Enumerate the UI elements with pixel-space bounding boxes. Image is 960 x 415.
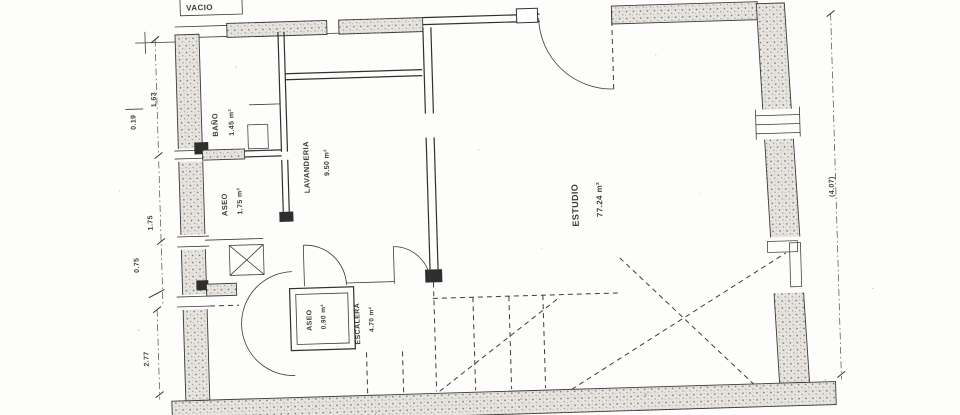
bano-inner-line xyxy=(249,104,280,105)
central-wall-cap xyxy=(425,269,442,282)
room-labels: ESTUDIO 77.24 m² LAVANDERIA 9.50 m² BAÑO… xyxy=(210,98,608,349)
label-escalera-area: 4.70 m² xyxy=(368,306,376,332)
top-wall-segment-3 xyxy=(611,2,757,24)
dim-left-mid: 1.75 xyxy=(147,215,154,230)
dim-left-bottom: 2.77 xyxy=(143,351,150,366)
bottom-wall xyxy=(172,382,836,415)
label-aseo-area: 1.75 m² xyxy=(237,187,245,214)
entry-door xyxy=(539,12,614,91)
stair-hall-wall xyxy=(206,283,236,296)
staircase xyxy=(208,231,789,400)
lavanderia-top-wall xyxy=(285,70,422,80)
central-wall xyxy=(423,27,438,269)
label-escalera: ESCALERA xyxy=(354,303,362,345)
stair-dash-top xyxy=(433,293,619,299)
label-aseo2: ASEO xyxy=(306,309,314,331)
top-annotation: VACIO xyxy=(180,0,243,16)
label-aseo: ASEO xyxy=(220,193,230,216)
aseo-right-wall xyxy=(282,160,290,212)
top-wall-segment-2 xyxy=(339,18,423,34)
dimensions: 1.63 0.19 1.75 0.75 2.77 (4.07) xyxy=(123,10,846,400)
bano-aseo-wall xyxy=(202,149,244,160)
stair-dash-left xyxy=(210,305,239,306)
label-aseo2-area: 0.90 m² xyxy=(320,304,328,330)
dim-left-offset: 0.19 xyxy=(130,115,137,130)
stair-door-swing-2 xyxy=(393,246,430,284)
bano-fixture xyxy=(248,124,269,149)
stair-door-swing-large xyxy=(240,272,295,377)
dim-left-top: 1.63 xyxy=(151,92,158,107)
label-estudio: ESTUDIO xyxy=(570,184,581,227)
label-lavanderia-area: 9.50 m² xyxy=(323,149,331,176)
label-lavanderia: LAVANDERIA xyxy=(301,141,312,193)
plan-rotated-group: ESTUDIO 77.24 m² LAVANDERIA 9.50 m² BAÑO… xyxy=(113,0,877,415)
stair-door-swing-1 xyxy=(303,244,346,286)
dim-right-side: (4.07) xyxy=(828,176,836,197)
dimension-ticks-left xyxy=(141,36,170,397)
aseo-bottom-line xyxy=(205,238,263,240)
bano-right-wall xyxy=(278,32,288,152)
duct-shaft xyxy=(229,244,264,275)
annotation-top-partial: VACIO xyxy=(186,3,213,13)
top-wall-segment-1 xyxy=(227,20,327,37)
bano-aseo-wall-thin xyxy=(244,150,281,157)
void-cross-diagonals xyxy=(568,253,790,389)
label-bano: BAÑO xyxy=(210,113,220,137)
door-jamb-left xyxy=(516,8,537,23)
floorplan-canvas: ESTUDIO 77.24 m² LAVANDERIA 9.50 m² BAÑO… xyxy=(0,0,960,415)
stair-hall-lintel xyxy=(346,282,394,283)
exterior-walls xyxy=(161,0,837,415)
dim-left-low: 0.75 xyxy=(134,257,141,272)
aseo-door-jamb-cap xyxy=(279,212,293,222)
scanned-floor-plan: ESTUDIO 77.24 m² LAVANDERIA 9.50 m² BAÑO… xyxy=(0,0,960,415)
label-estudio-area: 77.24 m² xyxy=(595,182,605,217)
left-wall xyxy=(175,34,210,401)
stair-flight-diagonal xyxy=(437,298,562,392)
label-bano-area: 1.45 m² xyxy=(228,108,236,135)
stair-treads-right xyxy=(473,295,546,390)
right-wall xyxy=(756,2,809,383)
stair-treads-left xyxy=(366,351,403,393)
door-swing-arc xyxy=(539,16,614,91)
